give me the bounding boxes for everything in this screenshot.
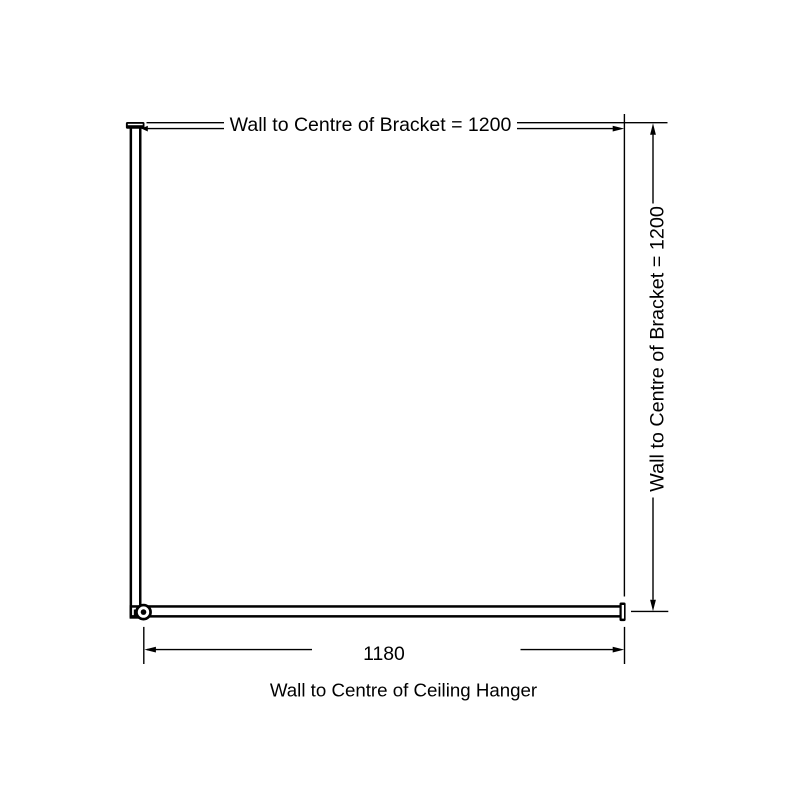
svg-text:Wall to Centre of Bracket = 12: Wall to Centre of Bracket = 1200 (230, 114, 512, 136)
svg-text:Wall to Centre of Ceiling Hang: Wall to Centre of Ceiling Hanger (270, 679, 537, 700)
svg-text:1180: 1180 (363, 643, 405, 665)
svg-text:Wall to Centre of Bracket = 12: Wall to Centre of Bracket = 1200 (647, 206, 669, 492)
